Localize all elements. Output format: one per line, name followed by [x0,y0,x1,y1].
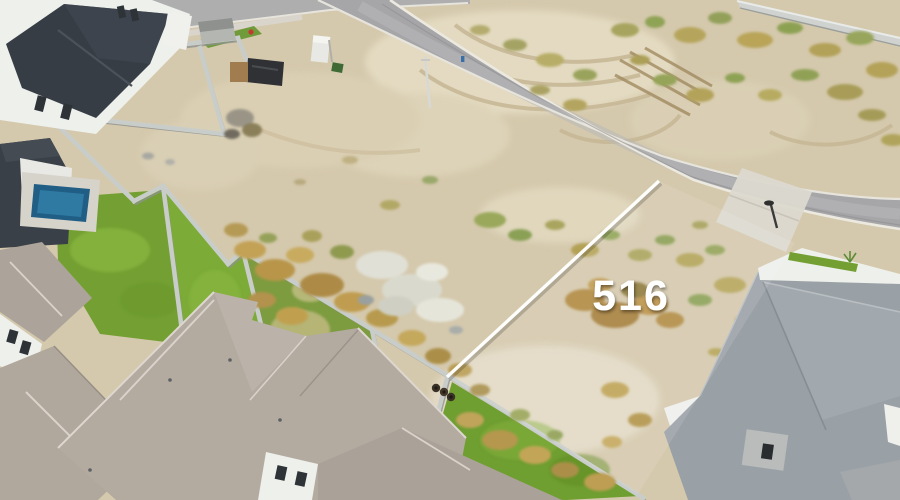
street-sign [461,56,464,62]
aerial-photo: 516 [0,0,900,500]
lot-number-label: 516 [592,272,670,320]
fire-hydrant [248,29,253,34]
equipment [761,443,774,459]
backyard-shed [198,18,236,44]
utility-box [331,62,343,73]
aerial-photo-canvas: 516 [0,0,900,500]
pool-water [37,190,84,217]
trailer-equipment [230,58,284,86]
